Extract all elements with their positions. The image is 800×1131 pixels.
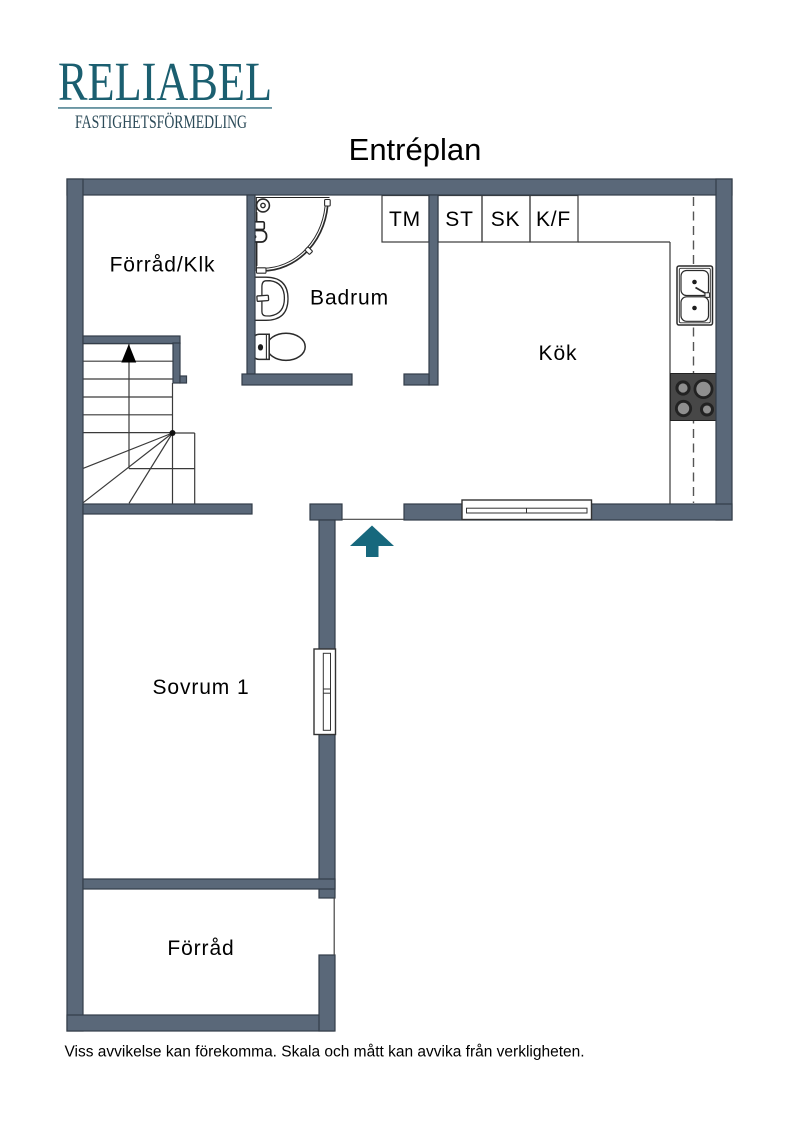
svg-text:Förråd: Förråd — [167, 937, 234, 960]
svg-text:Badrum: Badrum — [310, 287, 389, 310]
svg-text:Viss avvikelse kan förekomma.: Viss avvikelse kan förekomma. Skala och … — [65, 1044, 585, 1061]
svg-text:FASTIGHETSFÖRMEDLING: FASTIGHETSFÖRMEDLING — [75, 112, 247, 133]
svg-text:RELIABEL: RELIABEL — [58, 51, 272, 112]
svg-text:Kök: Kök — [539, 342, 578, 365]
svg-text:Förråd/Klk: Förråd/Klk — [110, 254, 216, 277]
svg-text:SK: SK — [491, 208, 521, 231]
svg-text:Entréplan: Entréplan — [349, 132, 482, 167]
svg-text:TM: TM — [389, 208, 421, 231]
svg-text:ST: ST — [445, 208, 473, 231]
svg-text:K/F: K/F — [536, 208, 571, 231]
svg-text:Sovrum 1: Sovrum 1 — [152, 676, 249, 699]
